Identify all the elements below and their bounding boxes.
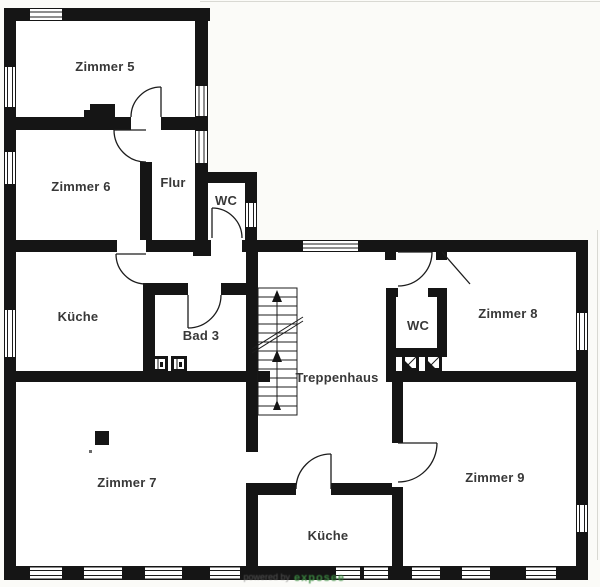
wall-bad3-top-left	[143, 283, 188, 295]
window	[196, 131, 207, 163]
watermark-prefix: powered by	[243, 572, 290, 582]
label-zimmer7: Zimmer 7	[97, 475, 156, 490]
window	[364, 568, 388, 579]
window	[412, 568, 440, 579]
wall-main-stub	[193, 240, 211, 256]
column-block-zimmer7	[95, 431, 109, 445]
label-treppenhaus: Treppenhaus	[295, 370, 378, 385]
shaft-wc-right-right	[425, 354, 442, 371]
label-wc-upper: WC	[215, 193, 237, 208]
floorplan-page: Zimmer 5 Zimmer 6 Flur WC Küche Bad 3 Tr…	[0, 0, 600, 587]
window	[30, 9, 62, 20]
wall-kueche-lower-top-right	[331, 483, 392, 495]
label-wc-right: WC	[407, 318, 429, 333]
wall-main-horizontal-a	[4, 240, 117, 252]
wall-zimmer5-divider-left	[4, 117, 131, 130]
chimney-step	[84, 110, 92, 118]
wall-divider-protrusion	[258, 371, 270, 382]
wall-zimmer9-west-upper	[392, 382, 403, 443]
label-zimmer5: Zimmer 5	[75, 59, 134, 74]
wall-kueche-lower-top-left	[246, 483, 296, 495]
label-kueche-upper: Küche	[58, 309, 99, 324]
wall-kueche-lower-west	[246, 483, 258, 566]
wall-wc-right-top-left	[386, 288, 398, 297]
window	[577, 505, 587, 532]
shaft-wc-right-left	[402, 354, 419, 371]
wall-main-horizontal-c	[242, 240, 588, 252]
floor-main-block	[4, 240, 588, 580]
wall-wc-annex-top	[195, 172, 257, 183]
window	[5, 152, 15, 184]
wall-kueche-zimmer7-divider	[4, 371, 270, 382]
label-zimmer8: Zimmer 8	[478, 306, 537, 321]
wall-main-horizontal-b	[146, 240, 193, 252]
label-zimmer9: Zimmer 9	[465, 470, 524, 485]
wall-wc-right-west	[386, 290, 396, 382]
wall-zimmer8-zimmer9-divider	[386, 371, 588, 382]
wall-zimmer5-divider-right	[161, 117, 208, 130]
label-kueche-lower: Küche	[308, 528, 349, 543]
chimney-block	[90, 104, 115, 118]
label-flur: Flur	[160, 175, 185, 190]
window	[526, 568, 556, 579]
label-bad3: Bad 3	[183, 328, 219, 343]
wall-wc-right-east	[437, 290, 447, 357]
window	[196, 86, 207, 116]
window	[246, 203, 256, 227]
window	[577, 313, 587, 350]
window	[303, 241, 358, 251]
window	[84, 568, 122, 579]
label-zimmer6: Zimmer 6	[51, 179, 110, 194]
watermark: powered by exposee	[243, 572, 345, 584]
window	[145, 568, 182, 579]
shaft-bad3-right	[171, 356, 187, 372]
window	[5, 67, 15, 107]
wall-zimmer9-west-lower	[392, 487, 403, 566]
window	[30, 568, 62, 579]
watermark-brand: exposee	[294, 572, 345, 584]
window	[210, 568, 240, 579]
small-mark-zimmer7	[89, 450, 92, 453]
shaft-bad3-left	[152, 356, 168, 372]
wall-doorstub-vestibule	[385, 252, 396, 260]
window	[5, 310, 15, 357]
wall-zimmer6-east	[140, 162, 152, 240]
floor-plan-svg: Zimmer 5 Zimmer 6 Flur WC Küche Bad 3 Tr…	[0, 0, 600, 587]
window	[462, 568, 490, 579]
